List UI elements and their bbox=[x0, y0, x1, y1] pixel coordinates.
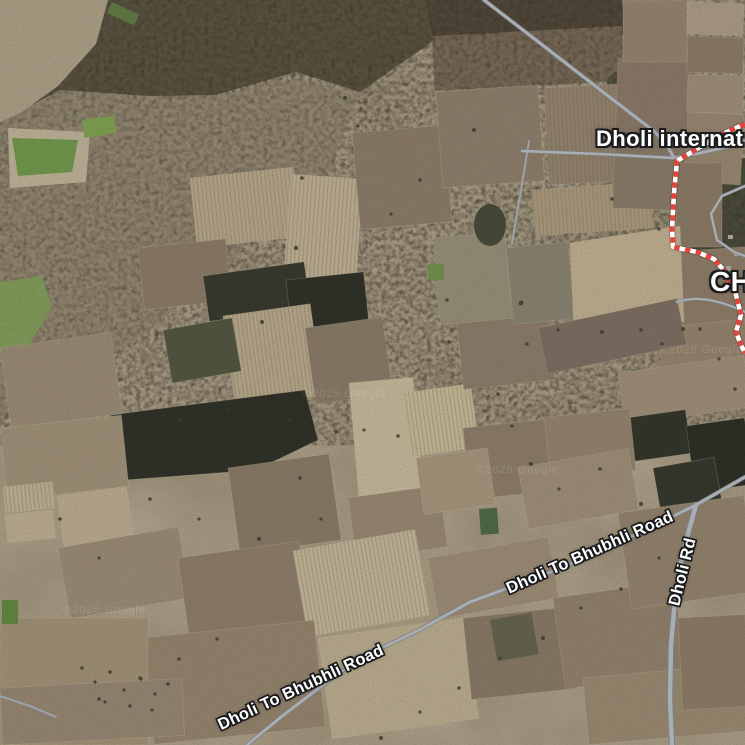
place-label-dholi-international[interactable]: Dholi internat bbox=[596, 126, 743, 152]
map-watermark: ©2025 Google bbox=[303, 388, 386, 400]
map-canvas[interactable]: Dholi internat CH Dholi To Bhubhli Road … bbox=[0, 0, 745, 745]
place-label-ch[interactable]: CH bbox=[710, 266, 745, 298]
map-watermark: ©2025 Google bbox=[660, 344, 743, 356]
satellite-imagery bbox=[0, 0, 745, 745]
map-watermark: ©2025 Google bbox=[63, 604, 146, 616]
imagery-grain bbox=[0, 0, 745, 745]
map-watermark: ©2025 Google bbox=[476, 464, 559, 476]
